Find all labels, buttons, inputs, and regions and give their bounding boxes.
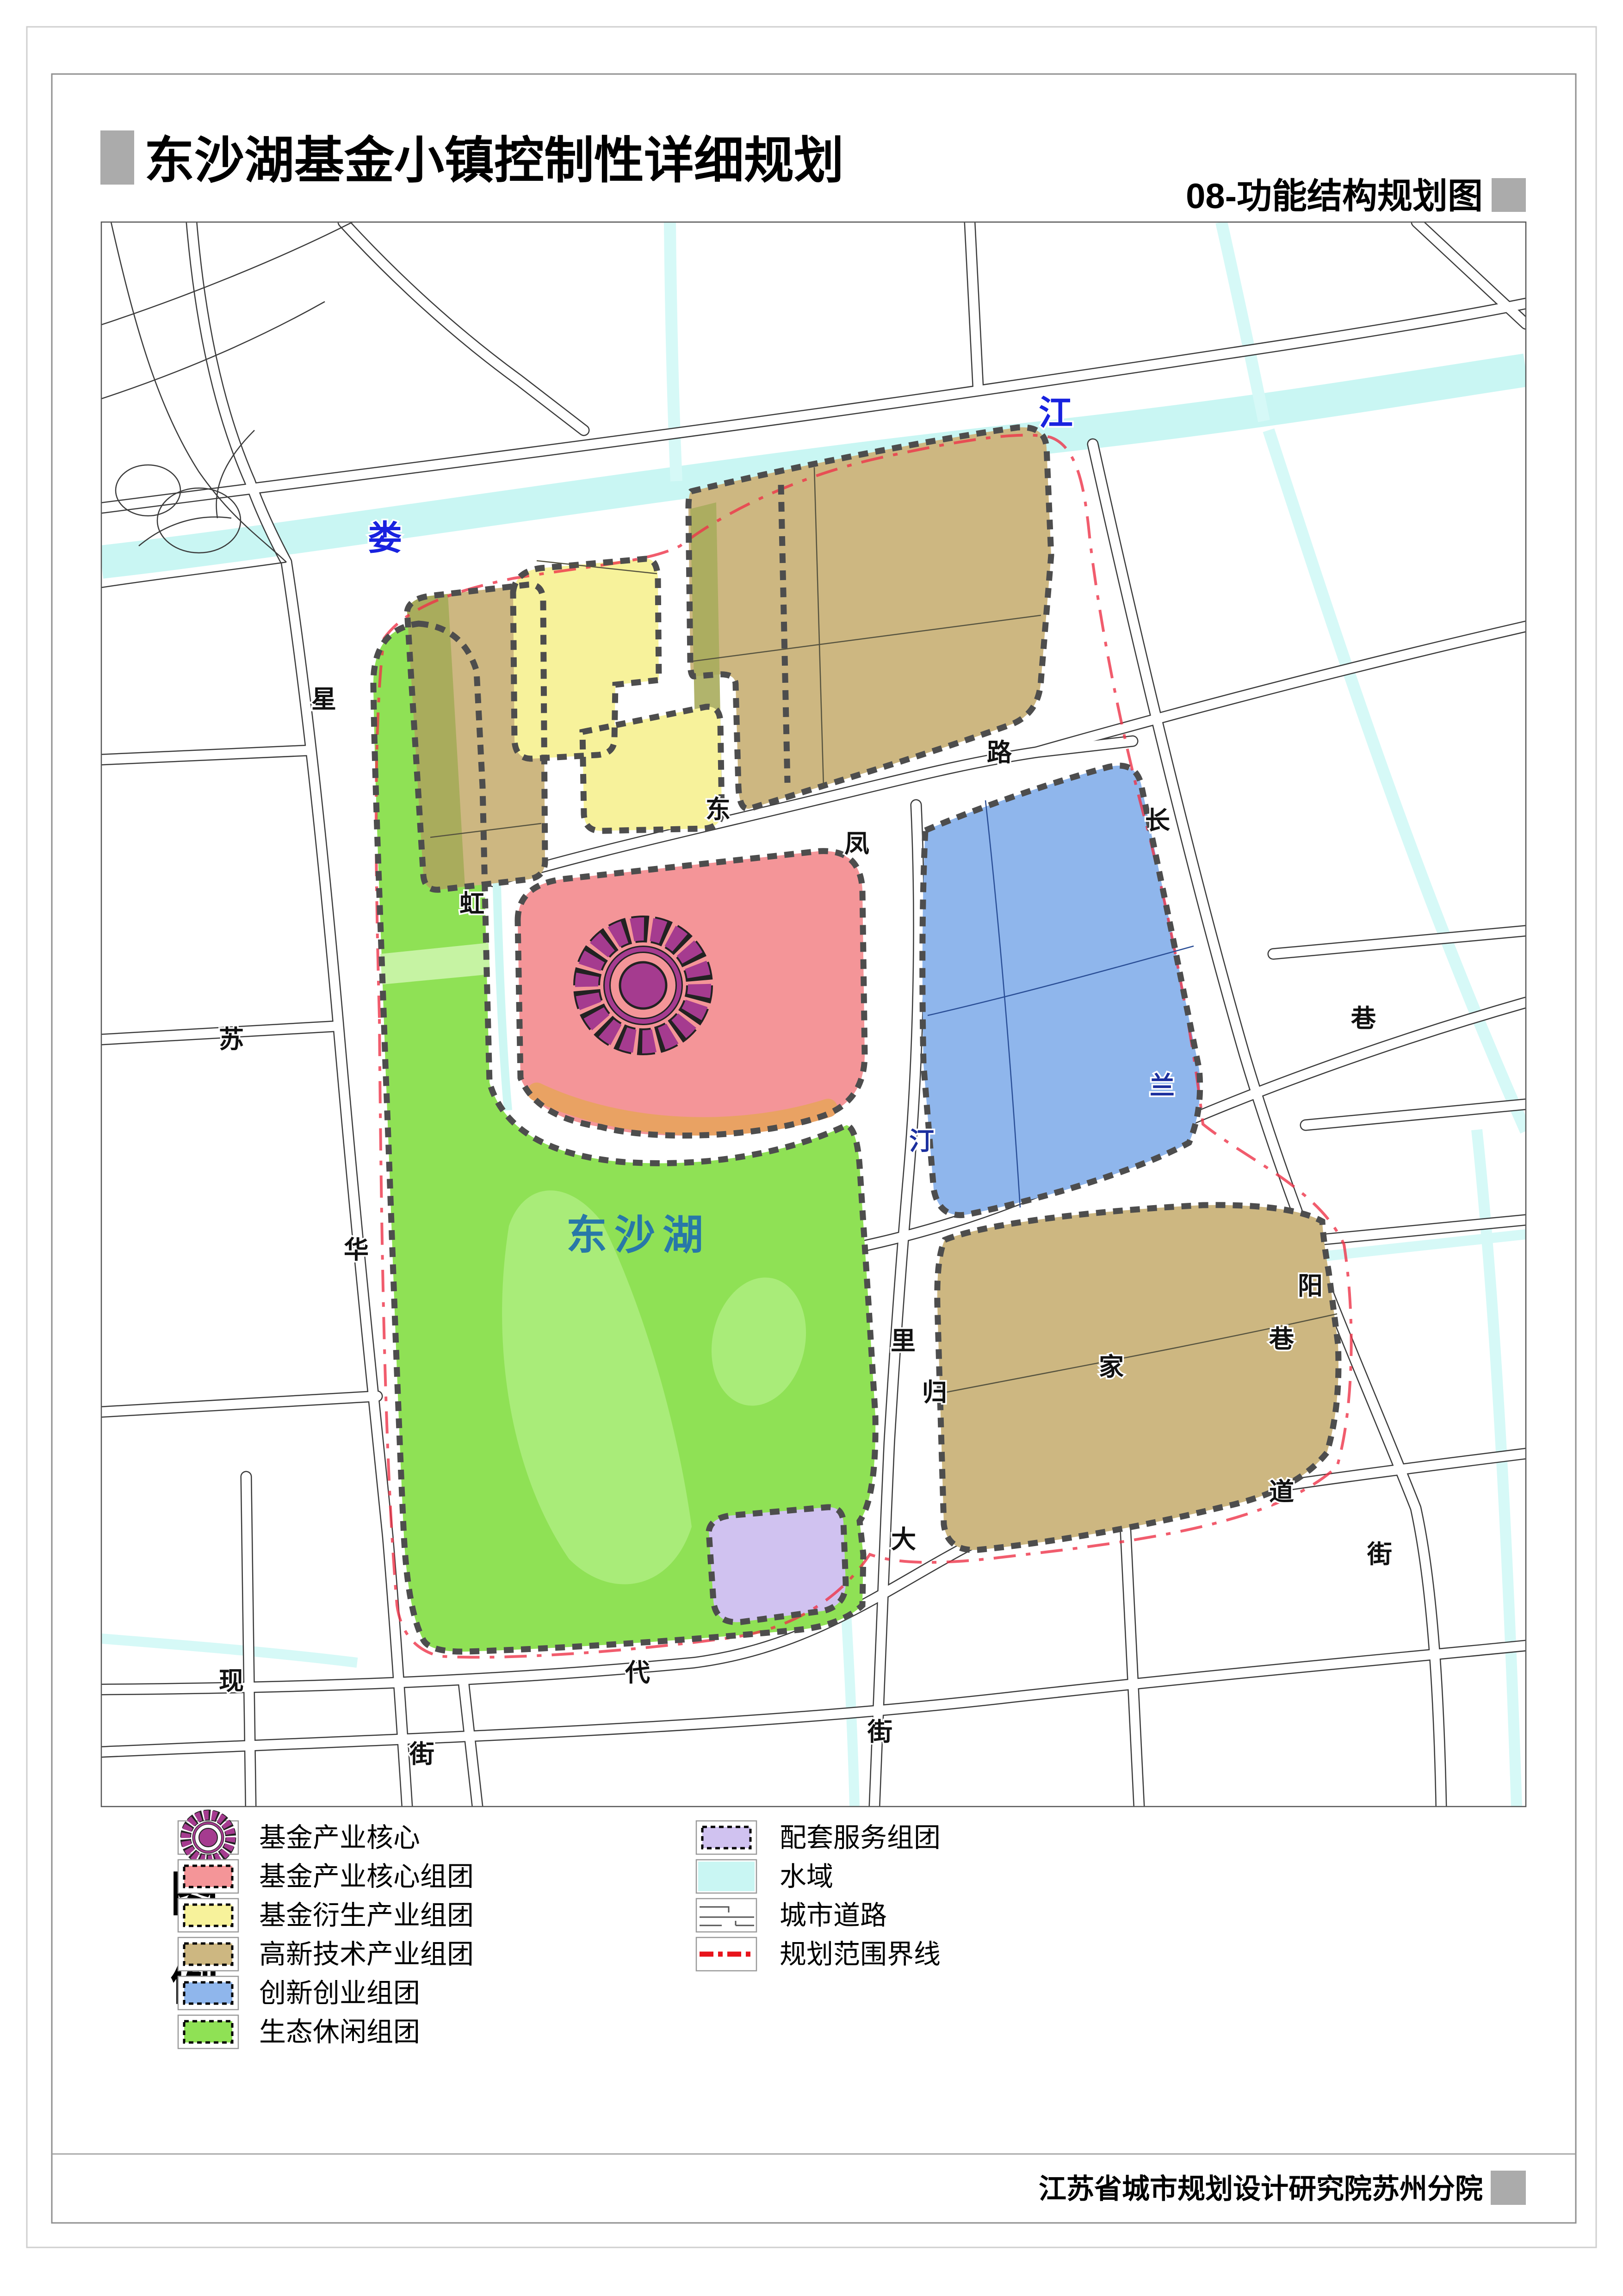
river-char: 娄 xyxy=(368,519,402,557)
svg-text:路: 路 xyxy=(987,739,1012,767)
sheet-subtitle: 08-功能结构规划图 xyxy=(1186,177,1483,216)
legend-swatch-pink xyxy=(184,1866,232,1887)
legend-item-label: 基金产业核心 xyxy=(259,1823,420,1853)
svg-text:道: 道 xyxy=(1269,1478,1294,1506)
title-accent-square xyxy=(100,130,134,185)
legend-item-label: 规划范围界线 xyxy=(780,1939,941,1969)
svg-text:街: 街 xyxy=(1367,1541,1392,1568)
svg-text:街: 街 xyxy=(409,1740,434,1768)
canal-north xyxy=(670,222,676,481)
plan-map: 娄 江 东沙湖 星 华 街 苏 虹 东 凤 路 长 阳 街 汀 兰 巷 里 归 … xyxy=(101,222,1526,1807)
legend-item-label: 创新创业组团 xyxy=(259,1978,420,2008)
legend-item-label: 配套服务组团 xyxy=(780,1823,941,1853)
legend-item-label: 高新技术产业组团 xyxy=(259,1939,474,1969)
svg-text:家: 家 xyxy=(1099,1353,1124,1381)
legend-flower-icon xyxy=(186,1815,231,1860)
svg-text:代: 代 xyxy=(625,1659,650,1687)
svg-text:里: 里 xyxy=(891,1327,916,1355)
footer-accent-square xyxy=(1491,2171,1526,2205)
subtitle-accent-square xyxy=(1492,178,1526,212)
svg-text:归: 归 xyxy=(922,1379,947,1406)
svg-text:现: 现 xyxy=(219,1667,244,1695)
svg-text:虹: 虹 xyxy=(459,890,484,918)
legend-swatch-tan xyxy=(184,1943,232,1965)
legend-swatch-blue xyxy=(184,1982,232,2004)
legend: 图 例 基金产业核心 基金产业核心组团 基金衍生产业组团 高新技术产业组团 创新… xyxy=(170,1815,941,2048)
svg-text:街: 街 xyxy=(867,1718,892,1746)
svg-text:兰: 兰 xyxy=(1150,1072,1175,1100)
legend-swatch-green xyxy=(184,2021,232,2042)
svg-text:苏: 苏 xyxy=(219,1026,244,1053)
svg-text:阳: 阳 xyxy=(1298,1272,1323,1300)
legend-swatch-purple xyxy=(702,1827,750,1848)
fund-core-icon xyxy=(587,929,700,1042)
svg-text:巷: 巷 xyxy=(1351,1005,1376,1033)
svg-text:星: 星 xyxy=(311,686,336,713)
zone-service xyxy=(709,1507,846,1622)
legend-item-label: 基金衍生产业组团 xyxy=(259,1900,474,1931)
svg-text:华: 华 xyxy=(344,1236,369,1264)
svg-text:大: 大 xyxy=(891,1526,916,1553)
svg-text:汀: 汀 xyxy=(909,1127,934,1155)
legend-swatch-water xyxy=(698,1862,755,1891)
river-char: 江 xyxy=(1039,394,1073,432)
svg-text:巷: 巷 xyxy=(1269,1325,1295,1353)
institute-name: 江苏省城市规划设计研究院苏州分院 xyxy=(1039,2173,1483,2204)
plan-sheet: 东沙湖基金小镇控制性详细规划 08-功能结构规划图 xyxy=(0,0,1623,2296)
legend-item-label: 生态休闲组团 xyxy=(259,2017,420,2047)
page-title: 东沙湖基金小镇控制性详细规划 xyxy=(144,132,844,188)
lake-name: 东沙湖 xyxy=(566,1212,711,1258)
svg-text:东: 东 xyxy=(706,796,731,823)
legend-item-label: 城市道路 xyxy=(780,1900,887,1931)
svg-text:凤: 凤 xyxy=(844,830,869,858)
legend-item-label: 基金产业核心组团 xyxy=(259,1862,474,1892)
legend-swatch-yellow xyxy=(184,1905,232,1926)
svg-text:长: 长 xyxy=(1145,807,1170,835)
legend-item-label: 水域 xyxy=(780,1862,833,1892)
